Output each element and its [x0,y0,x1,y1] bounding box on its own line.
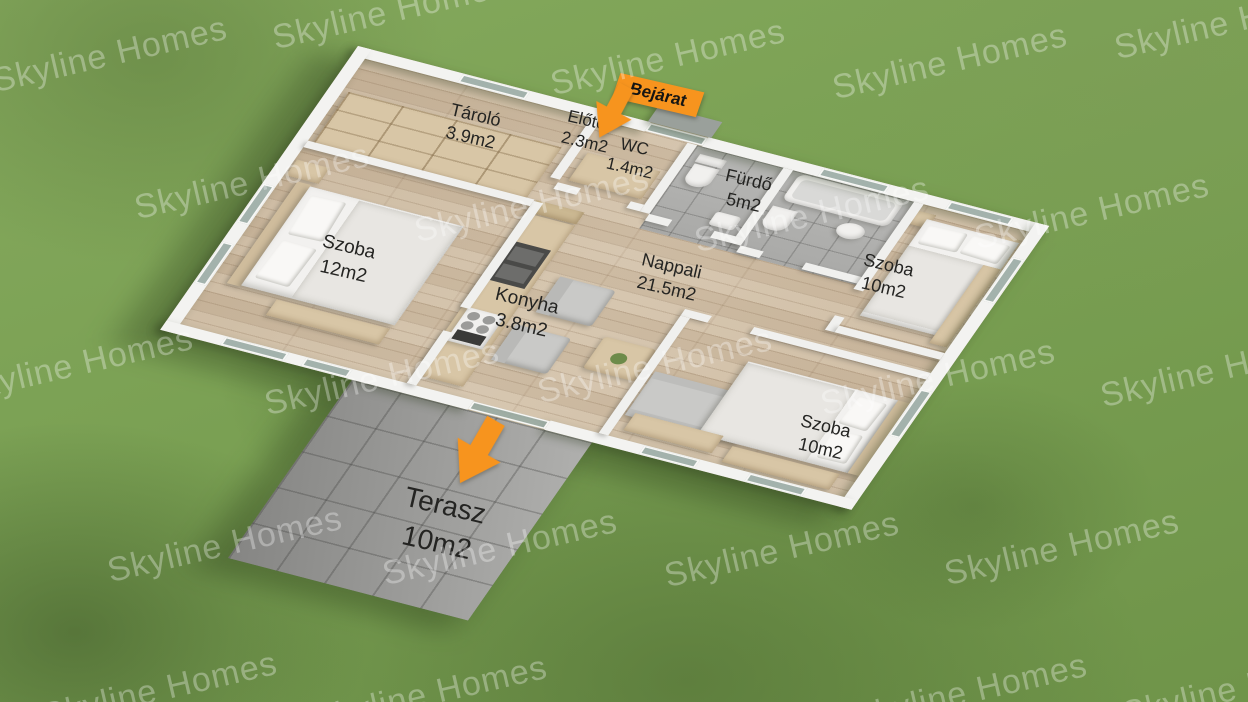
watermark-text: Skyline Homes [269,0,511,58]
isometric-scene [36,46,1049,688]
nightstand [286,160,330,184]
sink-bowl [495,263,533,284]
wall [553,182,581,195]
window [458,74,531,99]
watermark-text: Skyline Homes [941,502,1183,594]
floorplan-render: Tároló 3.9m2 Előtér 2.3m2 WC 1.4m2 Fürdő… [0,0,1248,702]
watermark-text: Skyline Homes [309,648,551,702]
watermark-text: Skyline Homes [1097,324,1248,416]
watermark-text: Skyline Homes [39,644,281,702]
watermark-text: Skyline Homes [849,646,1091,702]
watermark-text: Skyline Homes [1111,0,1248,68]
watermark-text: Skyline Homes [0,9,231,101]
sink-bowl [506,246,544,267]
watermark-text: Skyline Homes [829,16,1071,108]
watermark-text: Skyline Homes [1119,642,1248,702]
storage-shelving [312,92,562,200]
plant [607,351,630,366]
